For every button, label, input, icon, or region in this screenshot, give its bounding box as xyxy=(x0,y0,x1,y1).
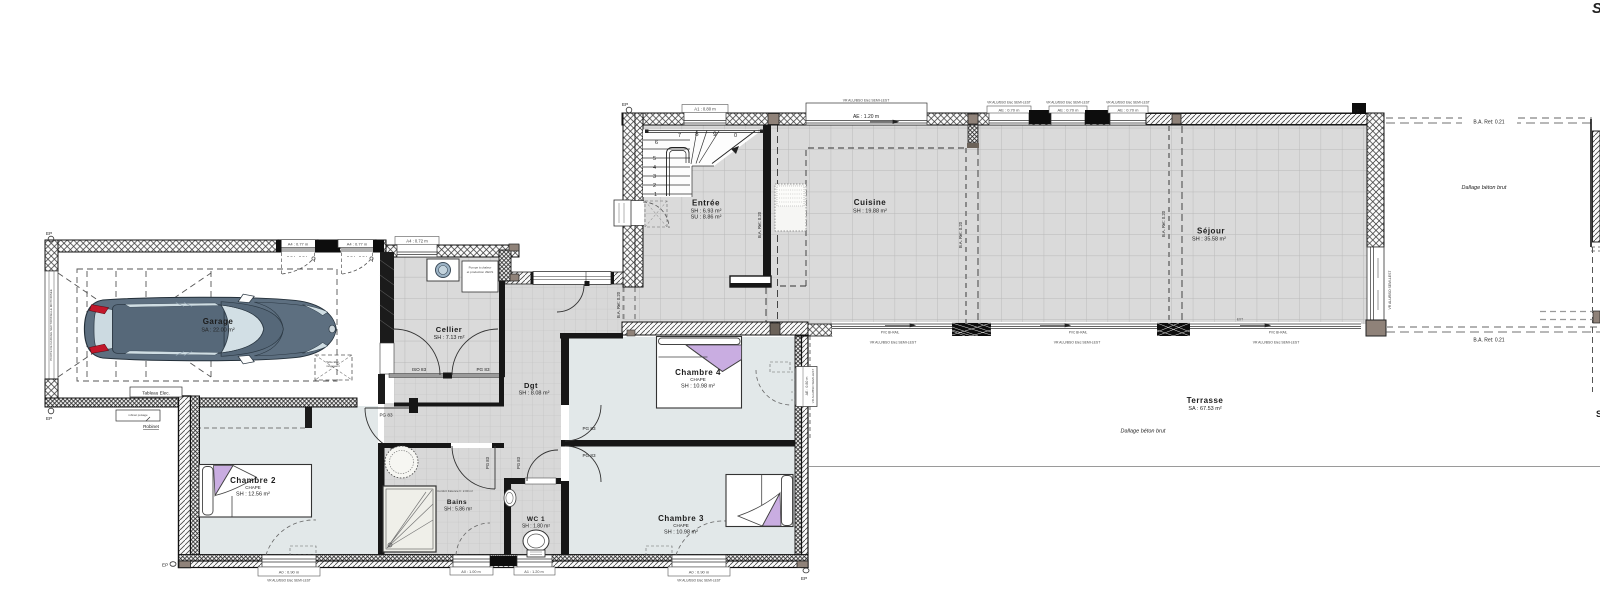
svg-text:PG 83: PG 83 xyxy=(476,367,489,372)
svg-text:SH : 10.98 m²: SH : 10.98 m² xyxy=(664,530,698,536)
svg-text:VR ALU/BSO SEMI-LEST: VR ALU/BSO SEMI-LEST xyxy=(811,369,815,404)
svg-text:S: S xyxy=(1596,409,1600,419)
svg-text:B.A. Ret: 0.21: B.A. Ret: 0.21 xyxy=(1473,338,1504,344)
svg-text:SH : 19.88 m²: SH : 19.88 m² xyxy=(853,209,887,215)
svg-text:Cuisine: Cuisine xyxy=(854,198,886,207)
svg-text:VR ALU/BSO SEMI-LEST: VR ALU/BSO SEMI-LEST xyxy=(1388,270,1392,309)
svg-text:PG 83: PG 83 xyxy=(379,413,392,418)
svg-text:CHAPE: CHAPE xyxy=(690,377,706,382)
svg-text:PG 83: PG 83 xyxy=(485,456,490,469)
svg-text:SH : 35.58 m²: SH : 35.58 m² xyxy=(1192,237,1226,243)
svg-text:AE : 0.80 m: AE : 0.80 m xyxy=(805,377,809,396)
svg-text:PVC BI-RAIL: PVC BI-RAIL xyxy=(1069,331,1088,335)
svg-text:PVC BI-RAIL: PVC BI-RAIL xyxy=(881,331,900,335)
svg-text:EXT: EXT xyxy=(1237,318,1243,322)
svg-text:Pompe à chaleur: Pompe à chaleur xyxy=(469,266,492,270)
svg-text:5: 5 xyxy=(653,156,656,162)
svg-text:A4 : 0.77 m: A4 : 0.77 m xyxy=(288,242,309,247)
svg-text:2: 2 xyxy=(653,183,656,189)
svg-text:Chambre 4: Chambre 4 xyxy=(675,368,721,377)
svg-text:AE : 0.70 m: AE : 0.70 m xyxy=(1058,108,1080,113)
svg-text:B.A. Ret: 0.20: B.A. Ret: 0.20 xyxy=(757,211,762,238)
svg-text:8: 8 xyxy=(695,131,699,138)
svg-text:Cellier: Cellier xyxy=(436,325,462,334)
svg-text:SH : 12.56 m²: SH : 12.56 m² xyxy=(236,492,270,498)
svg-text:EP: EP xyxy=(46,416,52,421)
svg-text:SH : 10.98 m²: SH : 10.98 m² xyxy=(681,384,715,390)
svg-text:Bains: Bains xyxy=(447,499,467,506)
svg-text:PG 83: PG 83 xyxy=(582,453,595,458)
svg-text:EP: EP xyxy=(801,576,807,581)
svg-text:A1 : 1.20 m: A1 : 1.20 m xyxy=(524,570,543,574)
svg-text:CHAPE: CHAPE xyxy=(245,485,261,490)
svg-text:Tableau Elec.: Tableau Elec. xyxy=(142,391,170,396)
svg-text:Dallage béton brut: Dallage béton brut xyxy=(1121,429,1166,435)
svg-text:VR ALU/BSO Elec SEMI-LEST: VR ALU/BSO Elec SEMI-LEST xyxy=(1106,101,1150,105)
svg-text:WC 1: WC 1 xyxy=(527,516,545,523)
svg-text:ISO 83: ISO 83 xyxy=(412,367,427,372)
svg-text:EP: EP xyxy=(1354,108,1360,113)
svg-text:Chambre 2: Chambre 2 xyxy=(230,476,276,485)
svg-text:SU : 8.86 m²: SU : 8.86 m² xyxy=(691,215,722,221)
svg-text:B.A. Ret: 0.20: B.A. Ret: 0.20 xyxy=(616,291,621,318)
svg-text:robinet puisage: robinet puisage xyxy=(128,413,148,417)
svg-text:1: 1 xyxy=(654,192,657,198)
svg-text:Dallage béton brut: Dallage béton brut xyxy=(1462,185,1507,191)
svg-text:B.A. Ret: 0.20: B.A. Ret: 0.20 xyxy=(1161,210,1166,237)
svg-text:EP: EP xyxy=(46,231,52,236)
svg-text:SH : 7.13 m²: SH : 7.13 m² xyxy=(434,335,465,341)
svg-text:et production d'ECS: et production d'ECS xyxy=(467,270,494,274)
svg-text:VR ALU/BSO Elec SEMI-LEST: VR ALU/BSO Elec SEMI-LEST xyxy=(1054,341,1101,345)
svg-text:AE : 0.70 m: AE : 0.70 m xyxy=(999,108,1021,113)
svg-text:SA : 22.00 m²: SA : 22.00 m² xyxy=(201,328,234,334)
svg-text:VR ALU/BSO Elec SEMI-LEST: VR ALU/BSO Elec SEMI-LEST xyxy=(1046,101,1090,105)
svg-text:Chambre 3: Chambre 3 xyxy=(658,514,704,523)
svg-text:AE : 1.20 m: AE : 1.20 m xyxy=(853,114,879,120)
svg-text:PVC BI-RAIL: PVC BI-RAIL xyxy=(1269,331,1288,335)
svg-text:PG 83: PG 83 xyxy=(582,426,595,431)
svg-text:VR ALU/BSO Elec SEMI-LEST: VR ALU/BSO Elec SEMI-LEST xyxy=(870,341,917,345)
svg-text:Confort Faïence h: 2.00 m²: Confort Faïence h: 2.00 m² xyxy=(437,489,473,493)
svg-text:Séjour: Séjour xyxy=(1197,227,1225,236)
svg-text:VR ALU/BSO Elec SEMI-LEST: VR ALU/BSO Elec SEMI-LEST xyxy=(677,579,721,583)
svg-text:PG 83: PG 83 xyxy=(516,456,521,469)
svg-text:A1 : 0.80 m: A1 : 0.80 m xyxy=(694,107,716,112)
svg-text:VR ALU/BSO Elec SEMI-LEST: VR ALU/BSO Elec SEMI-LEST xyxy=(987,101,1031,105)
svg-text:CHAPE: CHAPE xyxy=(673,523,689,528)
svg-text:Robinet: Robinet xyxy=(143,424,160,429)
svg-text:3: 3 xyxy=(653,174,656,180)
svg-text:VR ALU/BSO Elec SEMI-LEST: VR ALU/BSO Elec SEMI-LEST xyxy=(267,579,311,583)
svg-text:A0 : 0.90 m: A0 : 0.90 m xyxy=(279,570,300,575)
svg-text:A4 : 0.72 m: A4 : 0.72 m xyxy=(406,239,428,244)
svg-text:6: 6 xyxy=(655,140,658,146)
svg-text:7: 7 xyxy=(678,133,681,139)
svg-text:rangement: rangement xyxy=(326,364,340,368)
svg-text:SH : 1.80 m²: SH : 1.80 m² xyxy=(522,524,550,530)
svg-text:VR ALU/BSO Elec SEMI-LEST: VR ALU/BSO Elec SEMI-LEST xyxy=(1253,341,1300,345)
svg-text:AE : 0.70 m: AE : 0.70 m xyxy=(1118,108,1140,113)
svg-text:VR ALU/BSO Elec SEMI-LEST: VR ALU/BSO Elec SEMI-LEST xyxy=(843,99,890,103)
svg-text:A0 : 1.00 m: A0 : 1.00 m xyxy=(461,570,480,574)
svg-text:0: 0 xyxy=(734,133,737,139)
svg-text:Entrée: Entrée xyxy=(692,199,720,208)
svg-text:9: 9 xyxy=(713,131,717,138)
svg-text:Dgt: Dgt xyxy=(524,381,538,390)
svg-text:SH : 5.86 m²: SH : 5.86 m² xyxy=(444,507,472,513)
svg-text:A0 : 0.90 m: A0 : 0.90 m xyxy=(689,570,710,575)
svg-text:Terrasse: Terrasse xyxy=(1187,396,1224,405)
svg-text:4: 4 xyxy=(653,165,656,171)
svg-text:PORTE DE GARAGE SECTIONNELLE M: PORTE DE GARAGE SECTIONNELLE MOTORISEE xyxy=(49,289,53,360)
svg-text:SA : 67.53 m²: SA : 67.53 m² xyxy=(1188,406,1221,412)
svg-text:S: S xyxy=(1592,0,1600,17)
svg-text:B.A. Ret: 0.20: B.A. Ret: 0.20 xyxy=(958,221,963,248)
svg-text:EP: EP xyxy=(162,563,168,568)
svg-text:A4 : 0.77 m: A4 : 0.77 m xyxy=(347,242,368,247)
svg-text:EP: EP xyxy=(622,102,628,107)
svg-text:B.A. Ret: 0.21: B.A. Ret: 0.21 xyxy=(1473,120,1504,126)
svg-text:Garage: Garage xyxy=(203,317,234,326)
svg-text:SH : 8.08 m²: SH : 8.08 m² xyxy=(519,391,550,397)
